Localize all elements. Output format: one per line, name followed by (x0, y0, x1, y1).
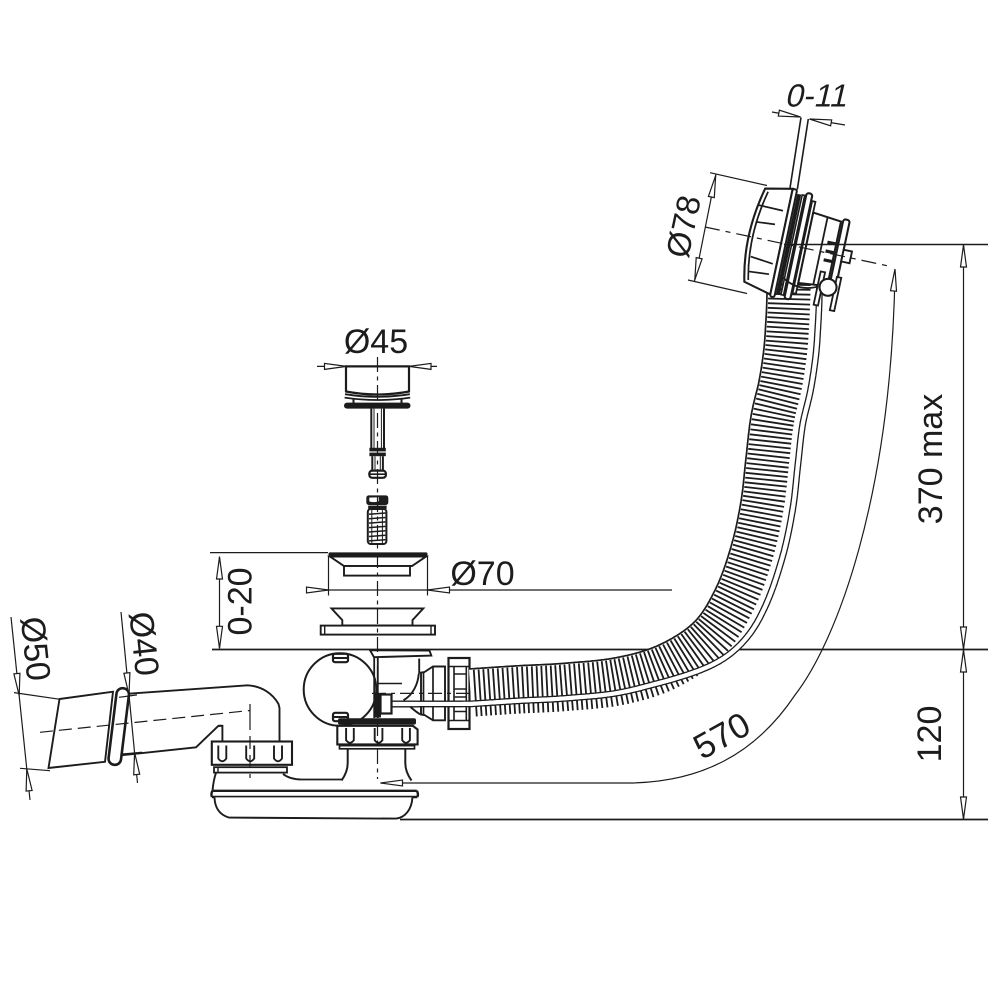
svg-text:Ø70: Ø70 (450, 555, 514, 593)
svg-text:Ø45: Ø45 (344, 323, 408, 361)
svg-text:120: 120 (911, 706, 949, 763)
svg-text:370 max: 370 max (912, 394, 950, 524)
svg-text:0-20: 0-20 (221, 567, 259, 635)
svg-text:Ø50: Ø50 (13, 615, 58, 683)
svg-text:Ø40: Ø40 (121, 610, 166, 678)
svg-text:0-11: 0-11 (783, 78, 853, 114)
